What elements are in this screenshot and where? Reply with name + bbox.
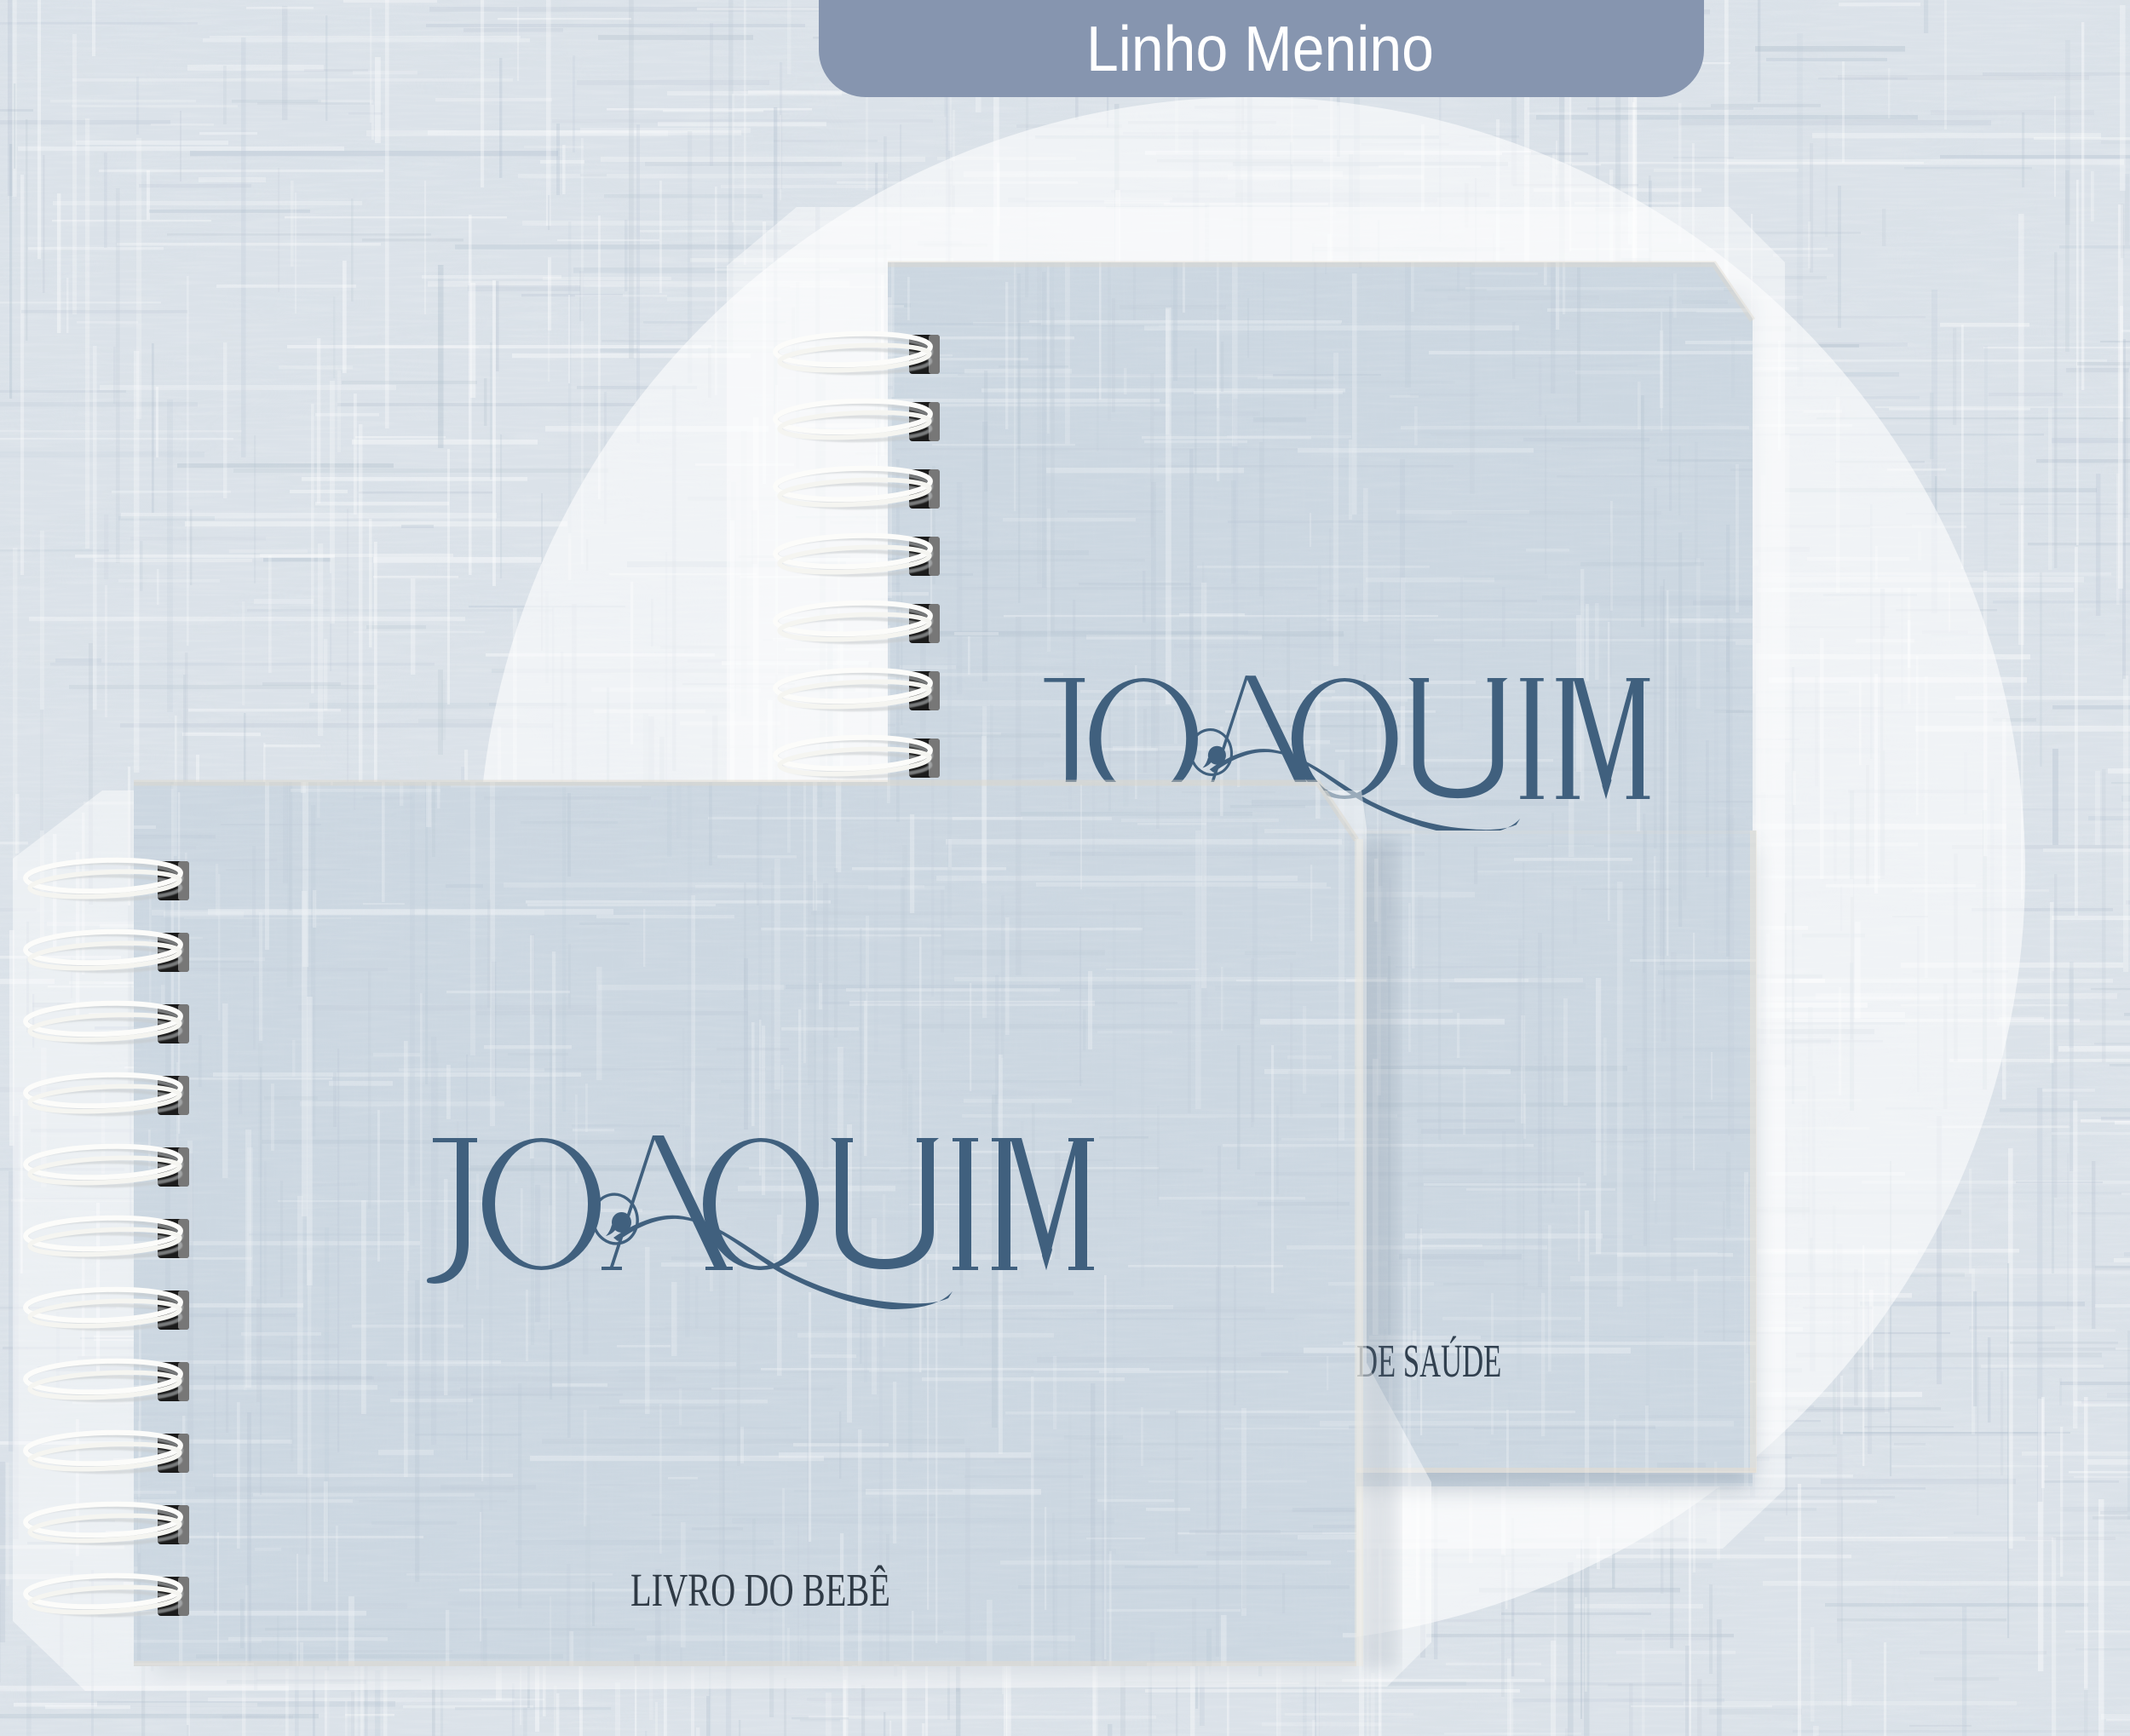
svg-text:Linho Menino: Linho Menino — [1086, 14, 1434, 85]
svg-text:LIVRO DO BEBÊ: LIVRO DO BEBÊ — [630, 1565, 890, 1616]
